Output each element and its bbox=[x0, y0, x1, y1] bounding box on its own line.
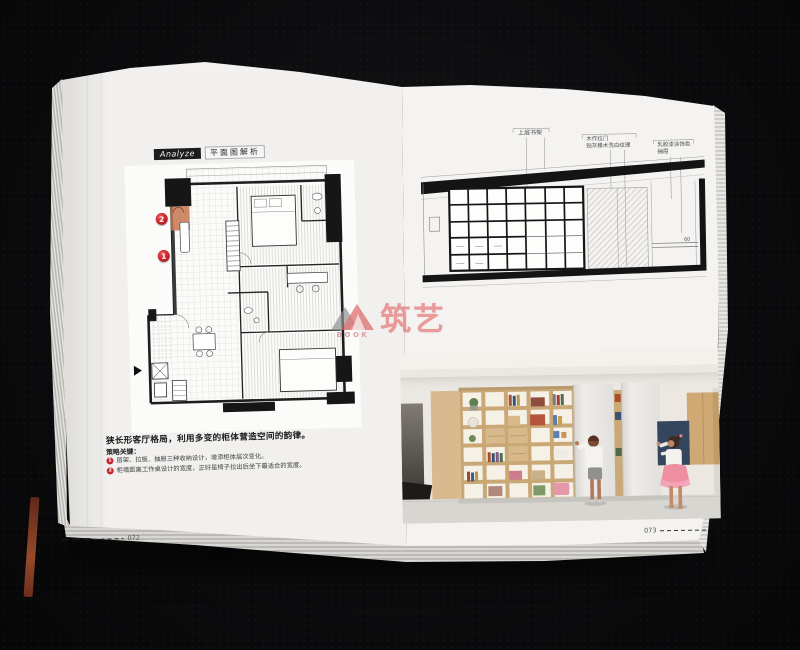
elevation-label-3a: 乳胶漆涂饰色 bbox=[657, 140, 691, 149]
right-page-footer: 073 bbox=[644, 525, 709, 534]
elevation-label-2a: 木作拉门 bbox=[586, 134, 608, 142]
footer-dash-line-right bbox=[660, 529, 708, 531]
dimension-label: 60 bbox=[684, 237, 690, 243]
interior-photo bbox=[400, 348, 721, 524]
page-number-right: 073 bbox=[644, 526, 657, 534]
right-page-content: 上层书架 木作拉门 贴灰橡木洗白纹理 乳胶漆涂饰色 抽屉 60 bbox=[0, 0, 800, 650]
book-photo-scene: Analyze 平面图解析 bbox=[0, 0, 800, 650]
wood-panel bbox=[431, 391, 463, 502]
sliding-panel-2 bbox=[621, 382, 661, 503]
elevation-drawing: 上层书架 木作拉门 贴灰橡木洗白纹理 乳胶漆涂饰色 抽屉 60 bbox=[414, 114, 713, 297]
elevation-label-1: 上层书架 bbox=[518, 128, 542, 136]
elevation-label-3b: 抽屉 bbox=[657, 147, 669, 155]
